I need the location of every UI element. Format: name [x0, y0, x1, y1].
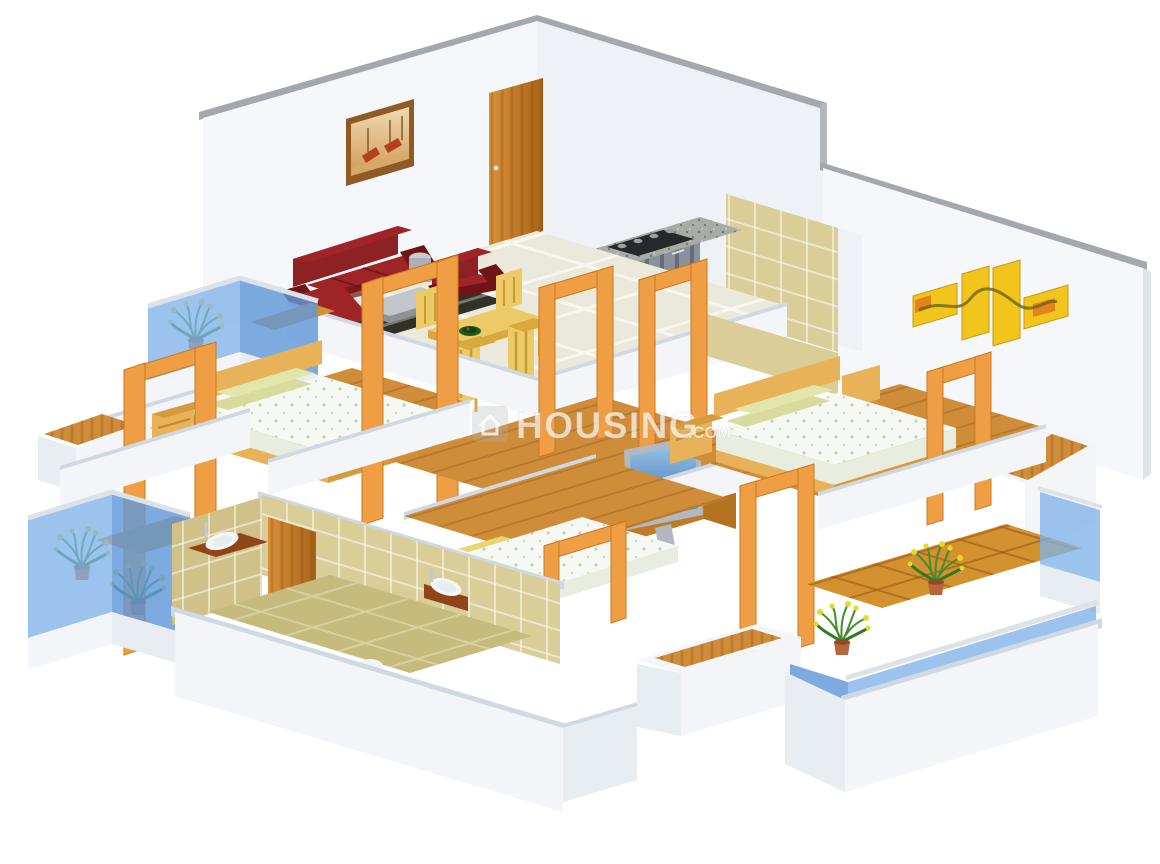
- door-frame-post: [927, 367, 943, 525]
- door-frame-post: [975, 352, 991, 510]
- fruit: [467, 328, 470, 331]
- door-frame-post: [362, 277, 383, 525]
- wall-notch-edge: [820, 103, 827, 168]
- fruit-bowl-inner: [463, 327, 477, 333]
- door-frame-post: [798, 464, 814, 648]
- burner: [618, 244, 627, 248]
- burner: [650, 234, 659, 238]
- wall-sliver: [838, 228, 862, 352]
- floor-plan-svg: HOUSING .COM: [0, 0, 1160, 864]
- entrance-door: [489, 78, 543, 247]
- step-side: [637, 664, 681, 736]
- plinth-face: [563, 706, 637, 802]
- wall-side-sliver: [1143, 268, 1151, 480]
- watermark-brand: HOUSING: [516, 405, 699, 446]
- house-icon: [472, 406, 508, 442]
- flowering-plant: [814, 601, 871, 655]
- door-grain: [489, 78, 543, 247]
- watermark-suffix: .COM: [688, 424, 731, 442]
- entrance-step-ledge: [637, 624, 801, 736]
- burner: [666, 229, 675, 233]
- floor-plan-stage: HOUSING .COM: [0, 0, 1160, 864]
- frame-post: [611, 521, 626, 623]
- burner: [634, 239, 643, 243]
- door-knob: [494, 166, 499, 171]
